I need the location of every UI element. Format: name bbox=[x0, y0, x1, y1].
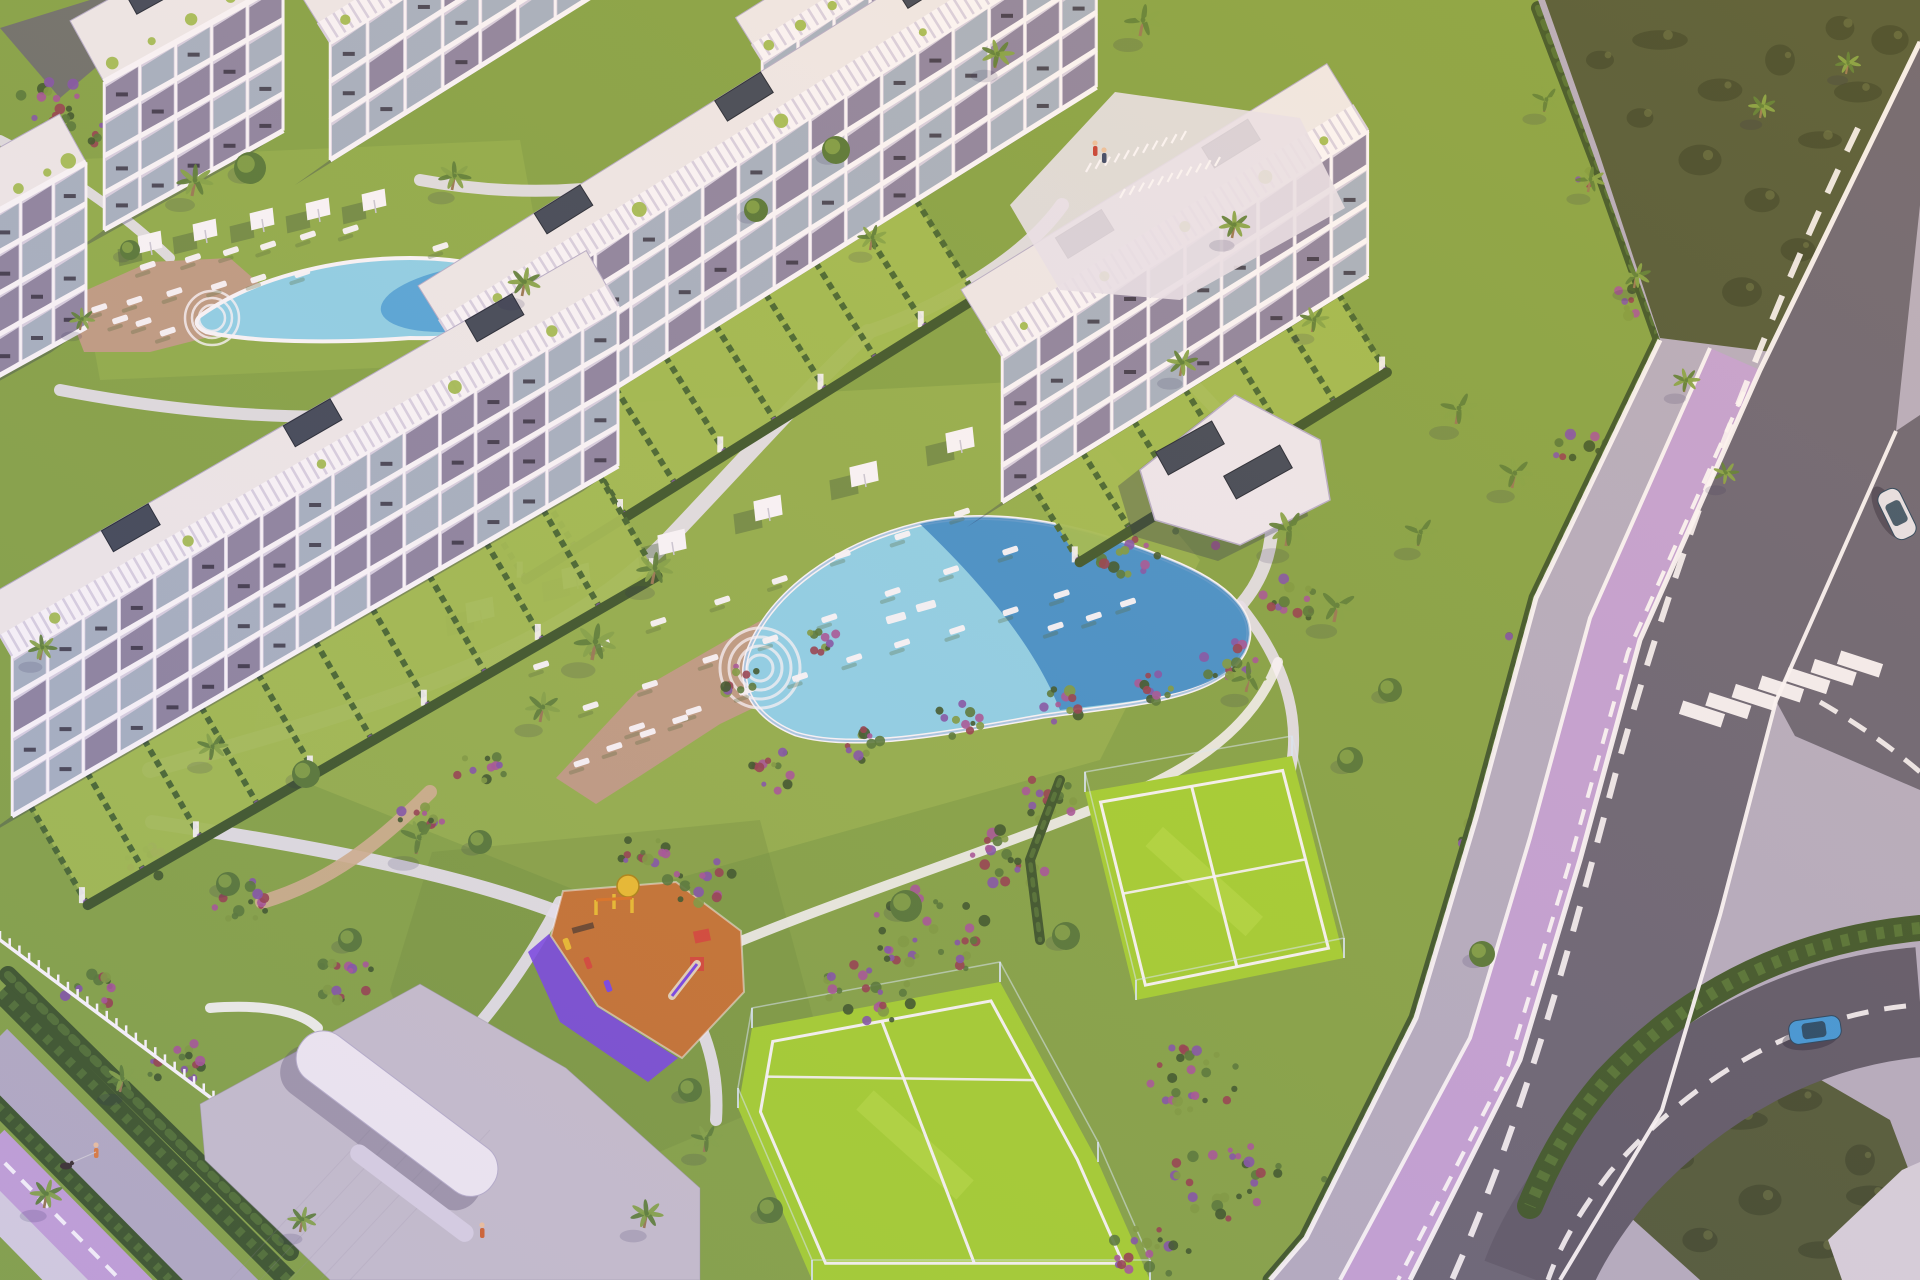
light-overlay bbox=[0, 0, 1920, 1280]
aerial-render-residential-complex bbox=[0, 0, 1920, 1280]
scene-canvas bbox=[0, 0, 1920, 1280]
